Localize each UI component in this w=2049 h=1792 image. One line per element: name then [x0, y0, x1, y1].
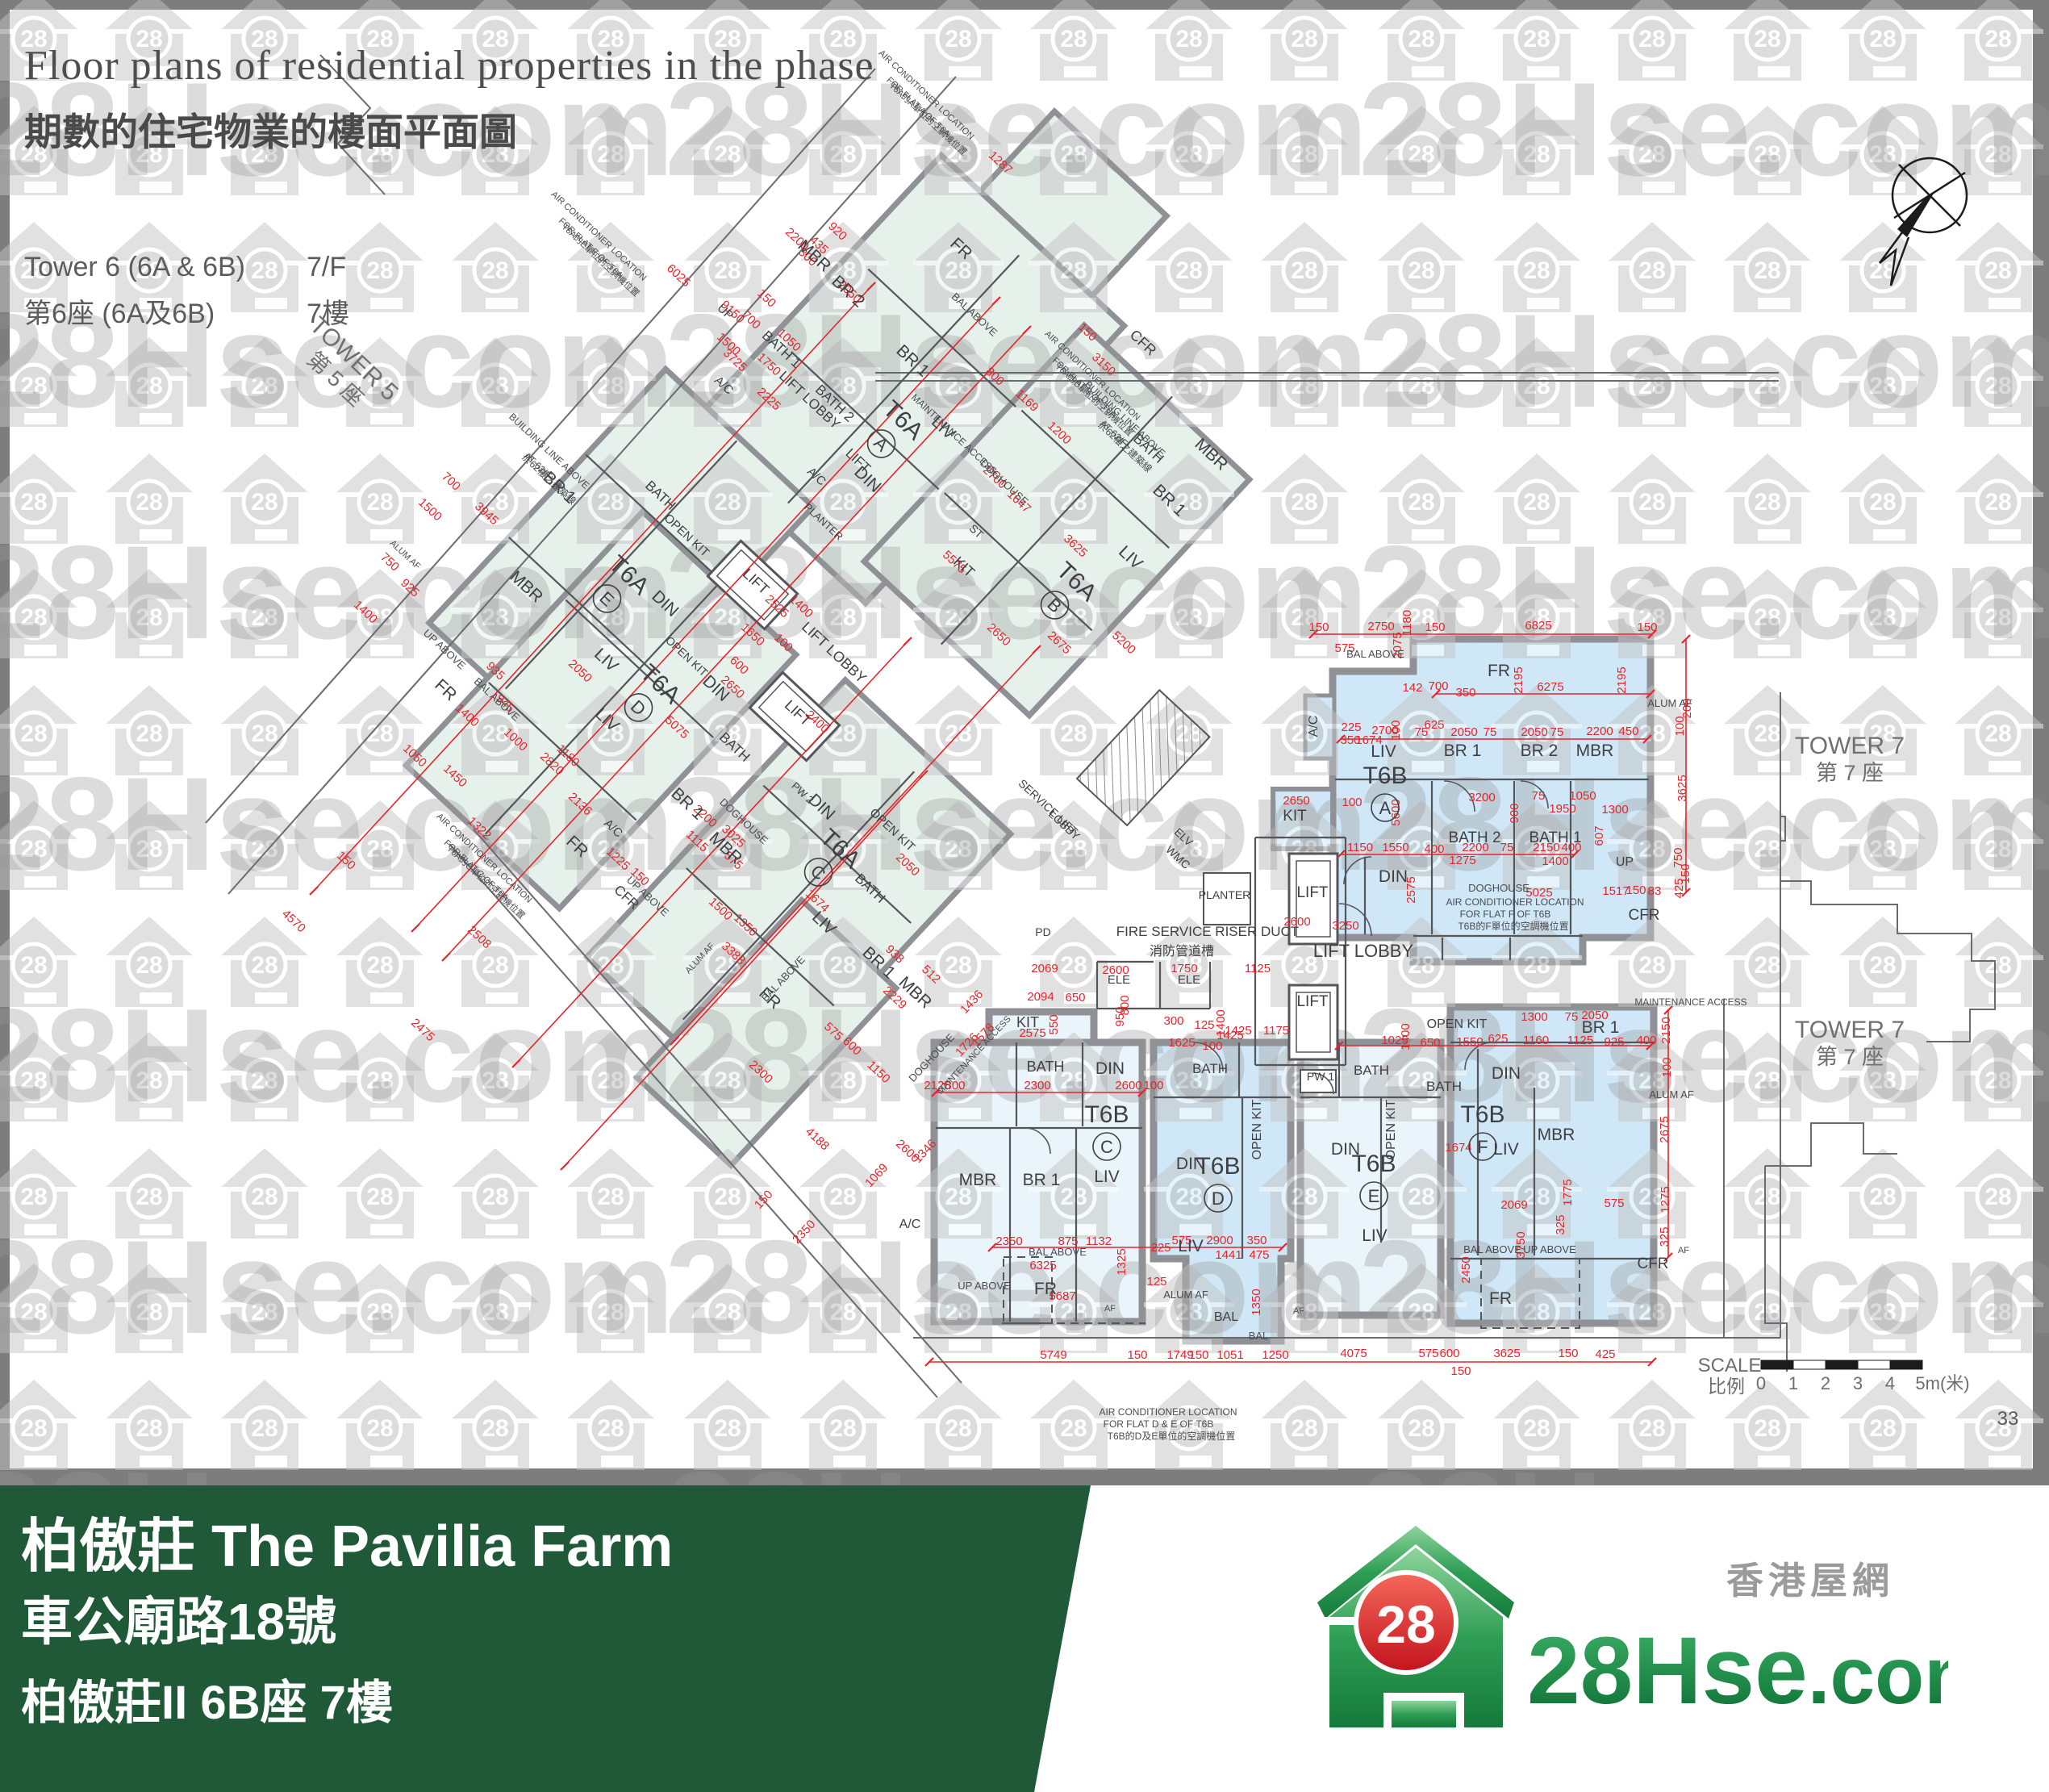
footer-banner: 柏傲莊 The Pavilia Farm 車公廟路18號 柏傲莊II 6B座 7… [0, 1485, 2049, 1792]
site-logo[interactable]: 28 28Hse.com [1303, 1514, 1948, 1756]
banner-green-panel: 柏傲莊 The Pavilia Farm 車公廟路18號 柏傲莊II 6B座 7… [0, 1485, 1091, 1792]
floor-en: 7/F [307, 252, 346, 283]
logo-text: 28Hse.com [1527, 1618, 1948, 1724]
floor-zh: 7樓 [307, 291, 349, 331]
document-page: 2828Hse.com15027501180150682515057520756… [0, 0, 2049, 1792]
tower-info: Tower 6 (6A & 6B) 7/F 第6座 (6A及6B) 7樓 [24, 252, 874, 331]
estate-name: 柏傲莊 The Pavilia Farm [21, 1498, 673, 1583]
estate-address: 車公廟路18號 [21, 1581, 336, 1655]
tower-name-zh: 第6座 (6A及6B) [24, 291, 307, 331]
page-title: Floor plans of residential properties in… [24, 42, 874, 90]
page-title-zh: 期數的住宅物業的樓面平面圖 [24, 101, 874, 157]
header: Floor plans of residential properties in… [24, 42, 874, 339]
svg-text:28: 28 [1376, 1594, 1435, 1654]
estate-unit-info: 柏傲莊II 6B座 7樓 [21, 1665, 393, 1732]
tower-name-en: Tower 6 (6A & 6B) [24, 252, 307, 283]
logo-house-icon: 28 [1317, 1526, 1514, 1727]
